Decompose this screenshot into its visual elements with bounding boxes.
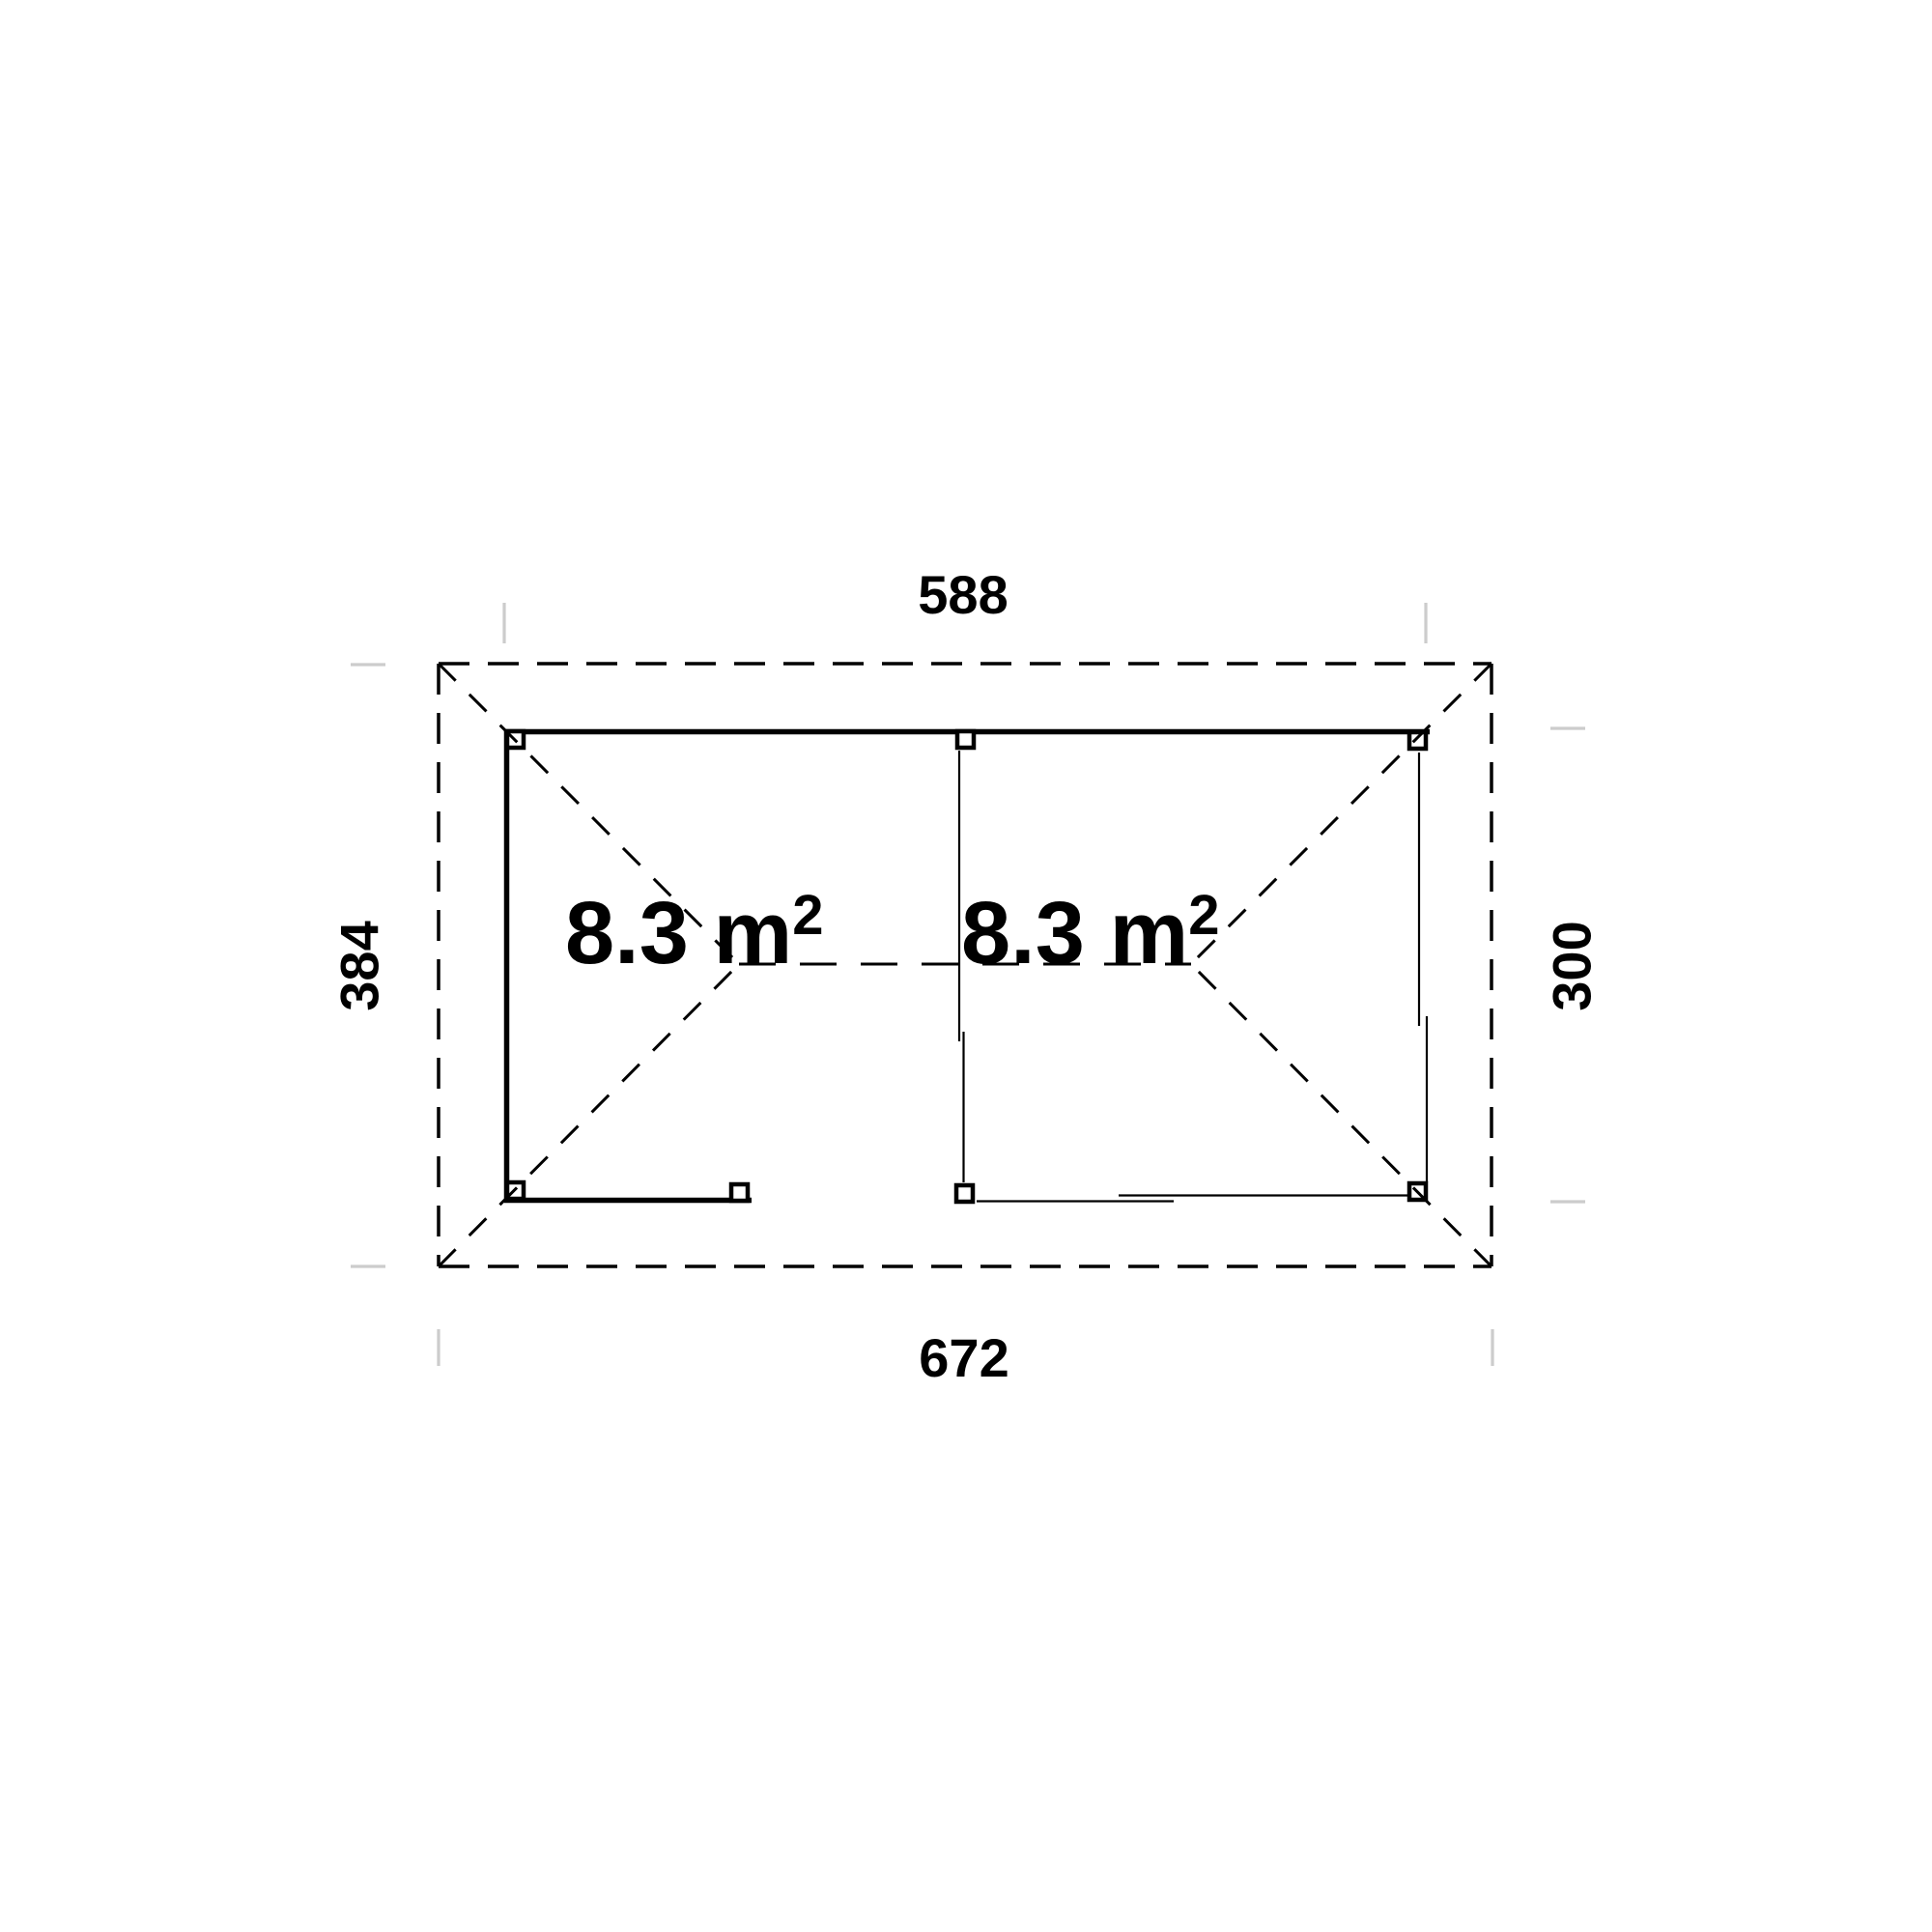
area-value-right: 8.3 m bbox=[961, 884, 1188, 982]
post-bottom-middle bbox=[956, 1185, 973, 1202]
area-superscript-right: 2 bbox=[1188, 884, 1219, 947]
post-top-right bbox=[1409, 732, 1426, 749]
roof-hip-diagonal-bottom-left bbox=[439, 964, 739, 1266]
post-top-middle bbox=[957, 731, 974, 748]
dim-label-bottom: 672 bbox=[919, 1327, 1009, 1388]
dimension-ticks bbox=[351, 603, 1585, 1366]
dim-label-top: 588 bbox=[918, 564, 1008, 625]
roof-hip-diagonal-bottom-right bbox=[1191, 964, 1492, 1266]
roof-hip-diagonal-top-right bbox=[1191, 664, 1492, 964]
area-labels: 8.3 m2 8.3 m2 bbox=[565, 884, 1220, 982]
area-label-right-room: 8.3 m2 bbox=[961, 884, 1220, 982]
floor-plan-canvas: 588 672 384 300 8.3 m2 8.3 m2 bbox=[0, 0, 1932, 1932]
area-superscript-left: 2 bbox=[792, 884, 823, 947]
area-label-left-room: 8.3 m2 bbox=[565, 884, 824, 982]
post-door-side bbox=[731, 1184, 748, 1201]
dim-label-left: 384 bbox=[329, 921, 390, 1010]
area-value-left: 8.3 m bbox=[565, 884, 792, 982]
floor-plan-drawing: 588 672 384 300 8.3 m2 8.3 m2 bbox=[0, 0, 1932, 1932]
dim-label-right: 300 bbox=[1542, 921, 1603, 1010]
